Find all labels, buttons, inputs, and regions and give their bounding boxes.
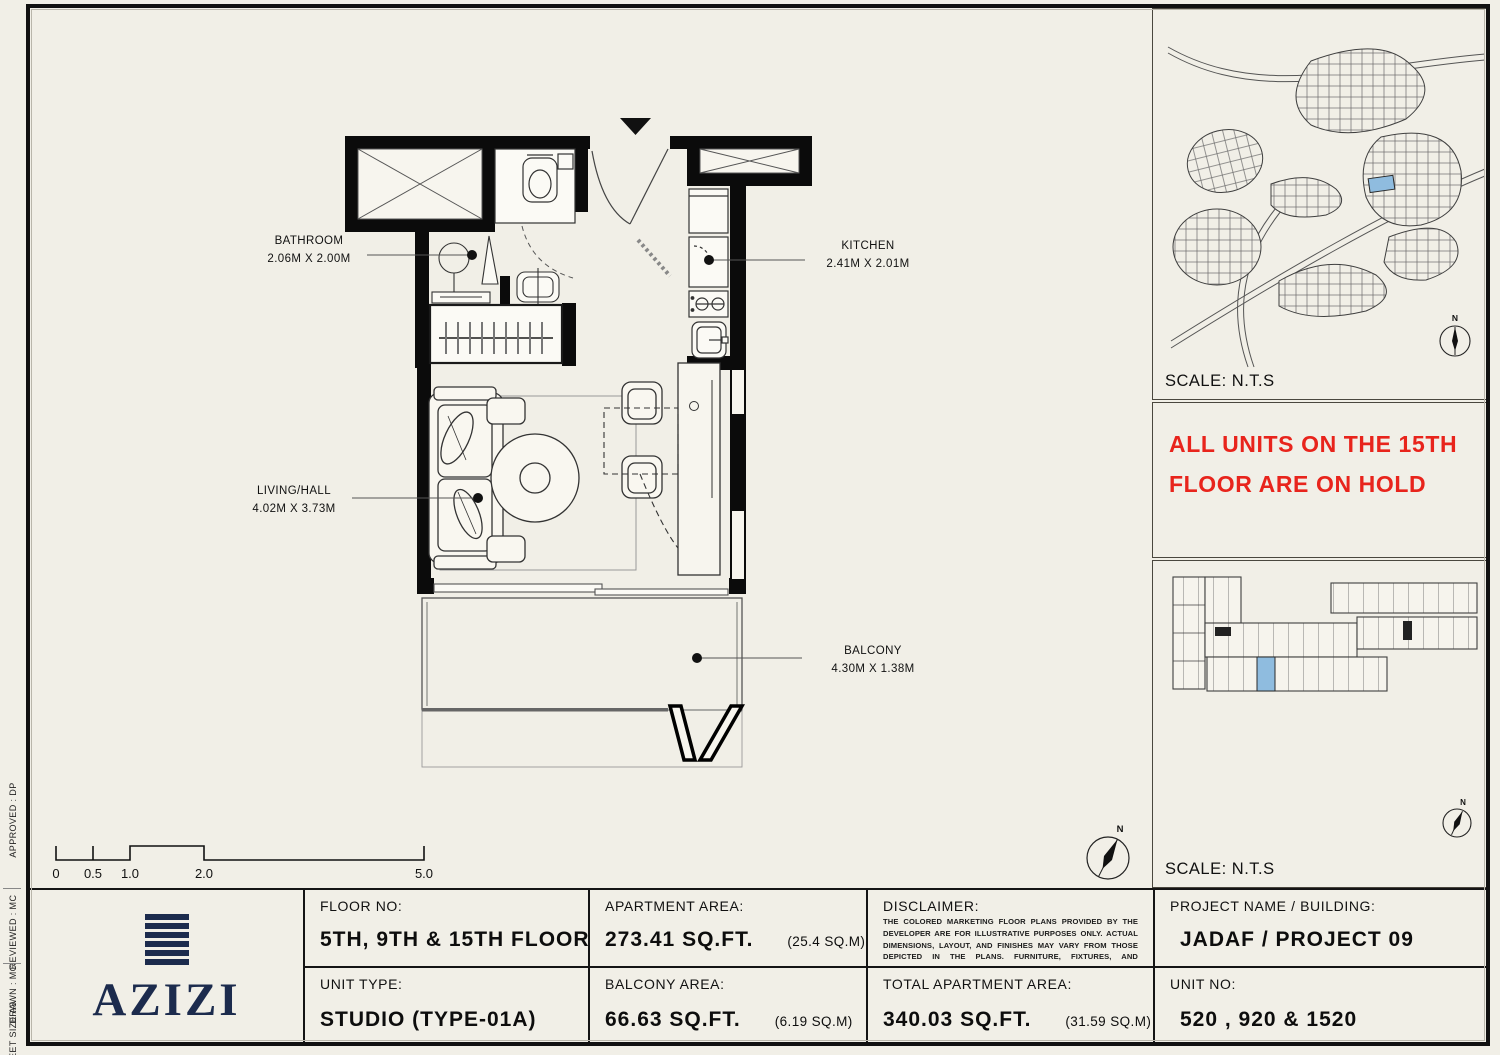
keyplan-north-compass-icon: N — [1443, 798, 1471, 837]
label-living-hall: LIVING/HALL4.02M X 3.73M — [235, 483, 353, 519]
cell-total-area: TOTAL APARTMENT AREA: 340.03 SQ.FT. (31.… — [868, 968, 1155, 1046]
stair-core — [1215, 627, 1231, 636]
map-scale-label: SCALE: N.T.S — [1165, 372, 1275, 391]
cell-unit-type: UNIT TYPE: STUDIO (TYPE-01A) — [305, 968, 590, 1046]
wardrobe — [430, 305, 562, 363]
cell-balcony-area: BALCONY AREA: 66.63 SQ.FT. (6.19 SQ.M) — [590, 968, 868, 1046]
cell-unit-no: UNIT NO: 520 , 920 & 1520 — [1155, 968, 1490, 1046]
north-compass-icon: N — [1087, 824, 1129, 879]
cell-project-name: PROJECT NAME / BUILDING: JADAF / PROJECT… — [1155, 890, 1490, 968]
label-bathroom: BATHROOM2.06M X 2.00M — [250, 233, 368, 269]
label-kitchen: KITCHEN2.41M X 2.01M — [808, 238, 928, 274]
map-north-compass-icon: N — [1440, 313, 1470, 356]
keyplan-scale-label: SCALE: N.T.S — [1165, 860, 1275, 879]
title-block-table: AZIZI FLOOR NO: 5TH, 9TH & 15TH FLOOR AP… — [30, 888, 1490, 1046]
keyplan-north-label: N — [1460, 798, 1466, 807]
building-keyplan: N — [1153, 561, 1488, 856]
sheet-meta-strip: APPROVED : DP REVIEWED : MC DRAWN : MC S… — [0, 0, 26, 1055]
keyplan-panel: N SCALE: N.T.S — [1152, 560, 1490, 888]
scale-bar — [56, 846, 424, 860]
floorplan-sheet: APPROVED : DP REVIEWED : MC DRAWN : MC S… — [0, 0, 1500, 1055]
disclaimer-text: THE COLORED MARKETING FLOOR PLANS PROVID… — [883, 916, 1138, 968]
scale-tick-1: 1.0 — [121, 866, 139, 881]
meta-sheet-size: SHEET SIZE A3 — [6, 962, 20, 1055]
cell-disclaimer: DISCLAIMER: THE COLORED MARKETING FLOOR … — [868, 890, 1155, 968]
cell-apartment-area: APARTMENT AREA: 273.41 SQ.FT. (25.4 SQ.M… — [590, 890, 868, 968]
azizi-bars-icon — [145, 914, 189, 965]
hold-notice-panel: ALL UNITS ON THE 15TH FLOOR ARE ON HOLD — [1152, 402, 1490, 558]
azizi-logo-text: AZIZI — [92, 977, 240, 1024]
highlighted-unit — [1257, 657, 1275, 691]
floor-plan-drawing: 0 0.5 1.0 2.0 5.0 N — [30, 8, 1148, 888]
north-label: N — [1117, 824, 1124, 835]
label-balcony: BALCONY4.30M X 1.38M — [808, 643, 938, 679]
highlighted-plot — [1368, 175, 1395, 192]
master-plan-map: N — [1153, 9, 1488, 369]
floor-plan-area: 0 0.5 1.0 2.0 5.0 N BATHROOM2.06M X 2.00… — [30, 8, 1148, 888]
scale-tick-2: 2.0 — [195, 866, 213, 881]
location-map-panel: N SCALE: N.T.S — [1152, 8, 1490, 400]
developer-logo: AZIZI — [30, 890, 305, 1046]
map-north-label: N — [1452, 313, 1458, 323]
scale-tick-0: 0 — [52, 866, 59, 881]
hold-notice-text: ALL UNITS ON THE 15TH FLOOR ARE ON HOLD — [1153, 403, 1489, 526]
cell-floor-no: FLOOR NO: 5TH, 9TH & 15TH FLOOR — [305, 890, 590, 968]
entrance-arrow-icon — [620, 118, 651, 135]
scale-tick-5: 5.0 — [415, 866, 433, 881]
stair-core — [1403, 621, 1412, 640]
scale-tick-05: 0.5 — [84, 866, 102, 881]
